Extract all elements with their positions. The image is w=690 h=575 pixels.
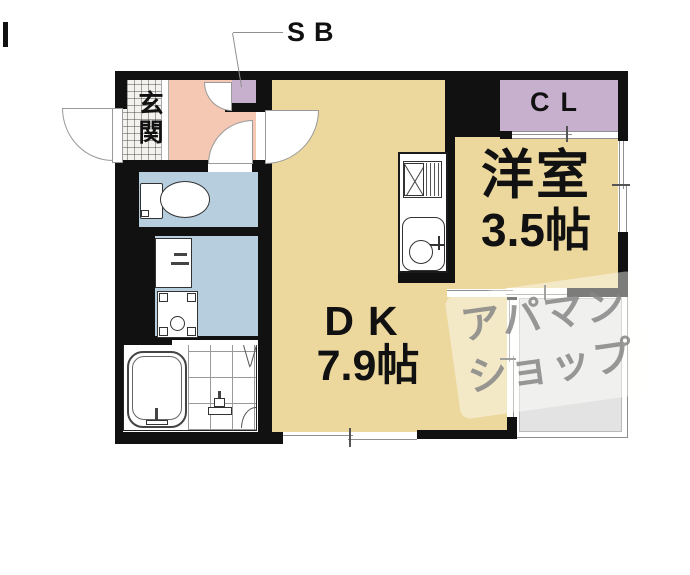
wall-bottom-left [115,432,283,444]
western-room-name: 洋室 [450,147,622,205]
cl-sliding-door [512,131,618,139]
cl-door-tick [566,126,568,142]
scan-artifact [3,22,8,47]
cl-label: CL [500,87,618,118]
wall-left-toilet-chunk [115,162,139,236]
watermark: アパマン ショップ [444,270,651,420]
western-room-label: 洋室 3.5帖 [450,147,622,256]
toilet-lever [141,210,149,217]
entrance-door-leaf [112,108,123,163]
wall-hall-bottom-a [115,160,208,172]
floorplan-canvas: SB CL 玄関 洋室 3.5帖 DK 7.9帖 アパマン ショップ [0,0,690,575]
wall-left-upper [115,71,127,109]
dk-label: DK 7.9帖 [288,299,448,390]
wall-top [115,71,628,80]
toilet-bowl [160,181,210,218]
entrance-label: 玄関 [131,90,167,148]
kitchen-drainer [426,163,441,196]
dk-window-tick [349,428,351,447]
wall-bottom-right [417,430,517,439]
dk-size: 7.9帖 [288,343,448,389]
washer-drain [170,316,185,331]
sb-label: SB [287,17,343,48]
wall-kitchen-stub [398,273,455,283]
wall-toilet-wash-divider [115,227,262,236]
wall-bottom-corner-post [507,417,517,439]
wall-left-lower [115,338,123,432]
entrance-door-arc [62,108,113,161]
vanity-faucet [174,253,187,256]
shower-mixer [208,407,232,415]
dk-name: DK [288,299,448,343]
room-sb-closet [232,77,256,103]
sb-leader-horizontal [233,32,283,33]
wall-right-upper [618,71,628,141]
wall-cl-left-stub [500,131,512,139]
wall-service-dk [258,162,272,432]
bath-door-fold [244,345,245,346]
wall-left-wash-chunk [115,230,155,338]
western-room-size: 3.5帖 [450,205,622,256]
